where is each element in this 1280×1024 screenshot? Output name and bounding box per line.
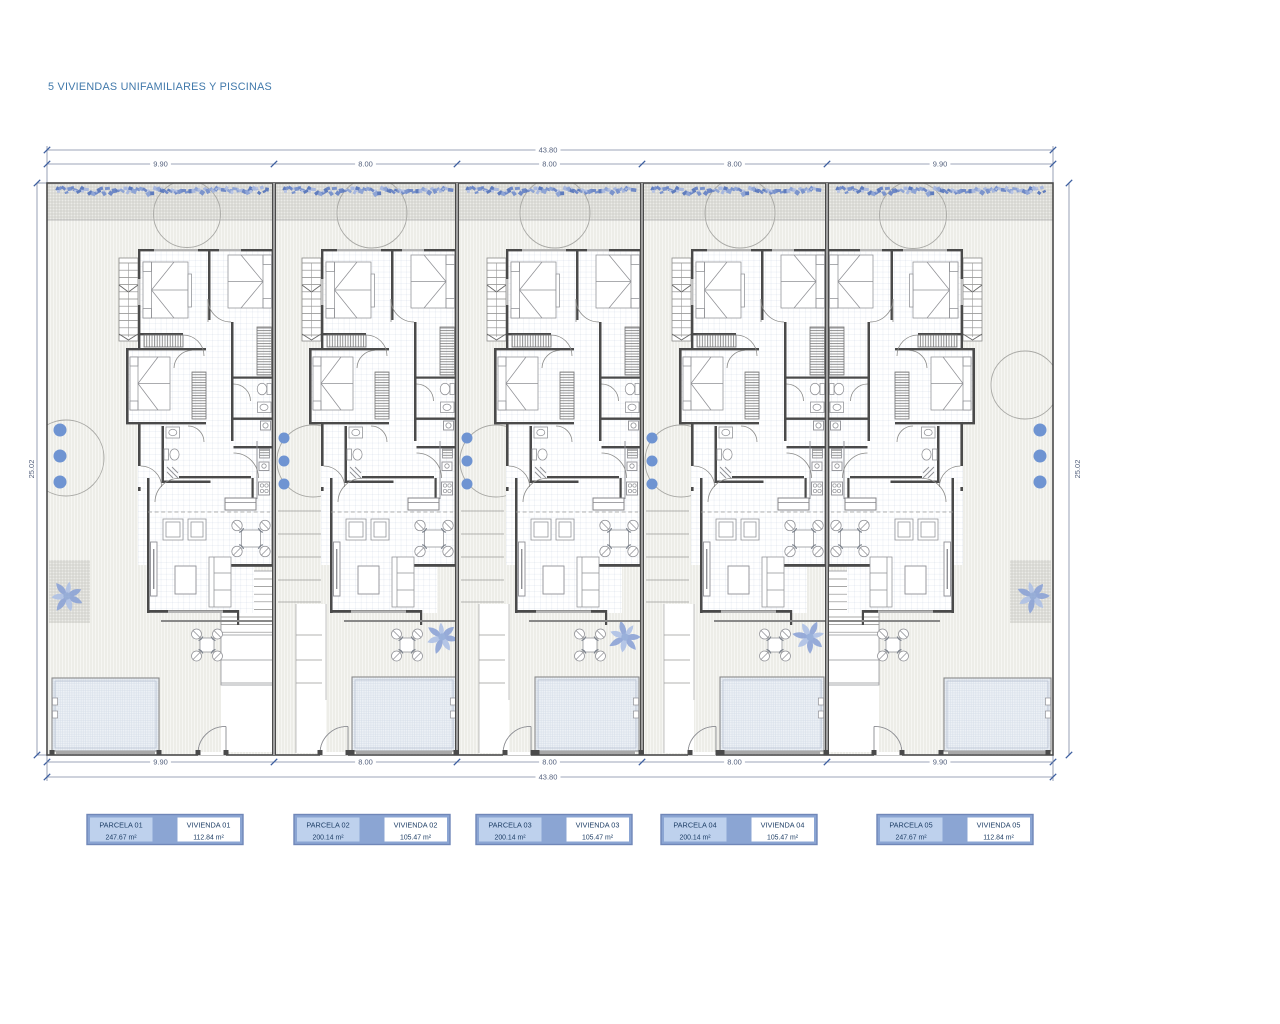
svg-text:247.67 m²: 247.67 m² xyxy=(895,835,927,842)
svg-text:VIVIENDA 04: VIVIENDA 04 xyxy=(761,821,805,830)
svg-text:105.47 m²: 105.47 m² xyxy=(767,835,799,842)
svg-text:43.80: 43.80 xyxy=(539,773,558,782)
svg-text:112.84 m²: 112.84 m² xyxy=(193,835,224,842)
svg-text:PARCELA 02: PARCELA 02 xyxy=(306,821,349,830)
svg-text:105.47 m²: 105.47 m² xyxy=(400,835,432,842)
svg-text:9.90: 9.90 xyxy=(933,160,948,169)
svg-text:9.90: 9.90 xyxy=(153,160,168,169)
svg-text:105.47 m²: 105.47 m² xyxy=(582,835,614,842)
svg-text:8.00: 8.00 xyxy=(727,758,742,767)
svg-text:8.00: 8.00 xyxy=(542,160,557,169)
svg-text:200.14 m²: 200.14 m² xyxy=(679,835,711,842)
svg-text:8.00: 8.00 xyxy=(542,758,557,767)
svg-text:43.80: 43.80 xyxy=(539,146,558,155)
svg-text:PARCELA 05: PARCELA 05 xyxy=(889,821,932,830)
svg-text:PARCELA 01: PARCELA 01 xyxy=(99,821,142,830)
svg-text:112.84 m²: 112.84 m² xyxy=(983,835,1014,842)
svg-text:25.02: 25.02 xyxy=(27,460,36,479)
svg-text:8.00: 8.00 xyxy=(727,160,742,169)
svg-text:25.02: 25.02 xyxy=(1073,460,1082,479)
svg-text:9.90: 9.90 xyxy=(933,758,948,767)
svg-text:PARCELA 03: PARCELA 03 xyxy=(488,821,531,830)
svg-text:VIVIENDA 03: VIVIENDA 03 xyxy=(576,821,620,830)
svg-text:VIVIENDA 05: VIVIENDA 05 xyxy=(977,821,1021,830)
svg-text:5 VIVIENDAS UNIFAMILIARES Y PI: 5 VIVIENDAS UNIFAMILIARES Y PISCINAS xyxy=(48,81,272,93)
svg-text:200.14 m²: 200.14 m² xyxy=(312,835,344,842)
svg-text:VIVIENDA 02: VIVIENDA 02 xyxy=(394,821,438,830)
svg-text:PARCELA 04: PARCELA 04 xyxy=(673,821,716,830)
svg-text:200.14 m²: 200.14 m² xyxy=(494,835,526,842)
svg-text:9.90: 9.90 xyxy=(153,758,168,767)
svg-text:VIVIENDA 01: VIVIENDA 01 xyxy=(187,821,231,830)
svg-text:8.00: 8.00 xyxy=(358,160,373,169)
svg-text:247.67 m²: 247.67 m² xyxy=(105,835,137,842)
svg-text:8.00: 8.00 xyxy=(358,758,373,767)
